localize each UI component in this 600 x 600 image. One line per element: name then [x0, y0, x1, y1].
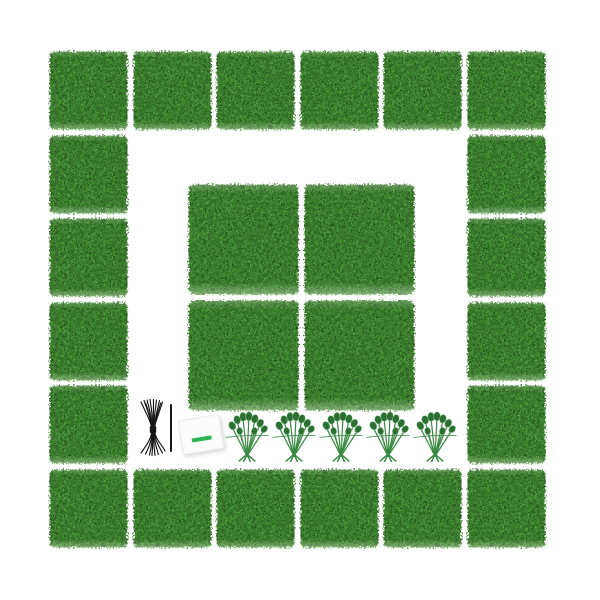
hedge-panel: [466, 50, 547, 131]
hedge-panel: [215, 468, 296, 549]
instruction-card-stripe: [192, 436, 212, 443]
greenery-cluster: [366, 411, 410, 462]
hedge-panel: [187, 183, 300, 296]
hedge-panel: [187, 299, 300, 412]
hedge-panel: [48, 468, 129, 549]
instruction-card: [178, 414, 225, 455]
hedge-panel: [466, 217, 547, 298]
hedge-panel: [466, 134, 547, 215]
zip-tie-bundle: [138, 399, 168, 457]
single-zip-tie: [170, 404, 172, 452]
hedge-panel: [382, 50, 463, 131]
hedge-panel: [215, 50, 296, 131]
hedge-panel: [299, 468, 380, 549]
hedge-panel: [48, 50, 129, 131]
hedge-panel: [48, 384, 129, 465]
greenery-cluster: [413, 411, 457, 462]
hedge-panel: [466, 301, 547, 382]
hedge-panel: [303, 183, 416, 296]
hedge-panel: [299, 50, 380, 131]
hedge-panel: [466, 384, 547, 465]
greenery-cluster: [319, 411, 363, 462]
hedge-panel: [466, 468, 547, 549]
hedge-panel: [48, 217, 129, 298]
greenery-cluster: [225, 411, 269, 462]
hedge-panel: [132, 50, 213, 131]
hedge-panel: [132, 468, 213, 549]
hedge-panel: [303, 299, 416, 412]
hedge-panel: [48, 301, 129, 382]
hedge-panel: [48, 134, 129, 215]
hedge-panel: [382, 468, 463, 549]
greenery-cluster: [272, 411, 316, 462]
product-photo: [0, 0, 600, 600]
